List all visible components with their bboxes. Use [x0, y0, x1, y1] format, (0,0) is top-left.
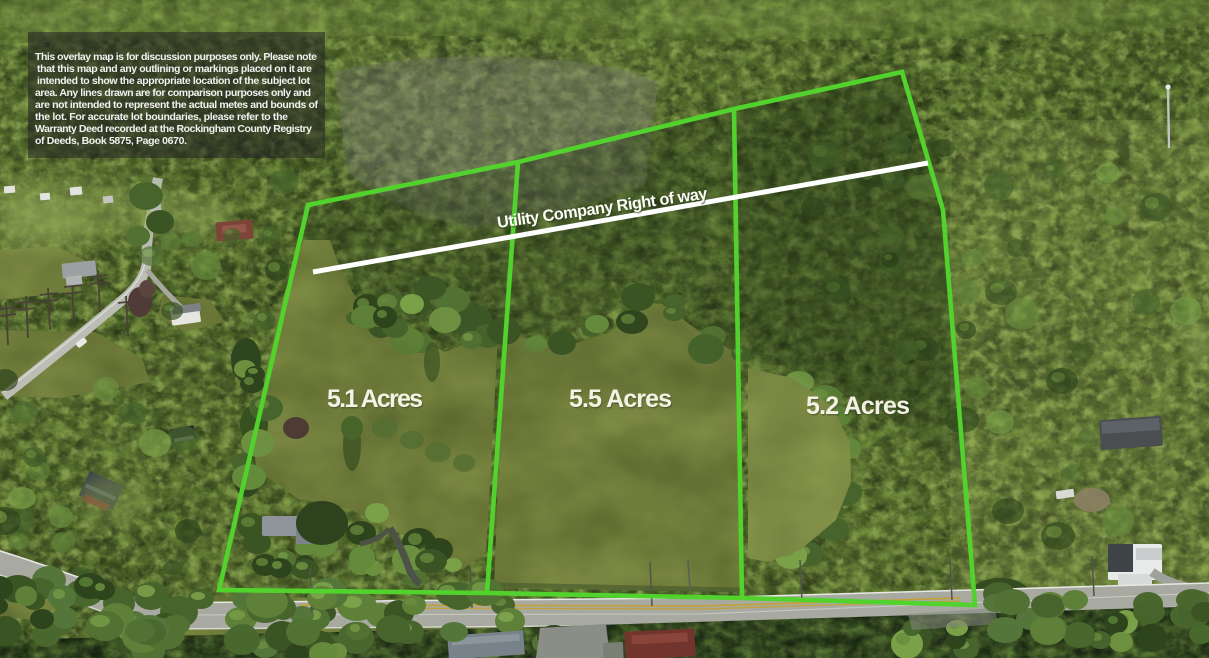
svg-text:intended to show the appropria: intended to show the appropriate locatio… [37, 75, 311, 87]
svg-text:5.5 Acres: 5.5 Acres [569, 385, 672, 413]
svg-text:This overlay map is for discus: This overlay map is for discussion purpo… [35, 51, 317, 63]
svg-text:5.2 Acres: 5.2 Acres [806, 392, 910, 420]
svg-text:5.1 Acres: 5.1 Acres [327, 385, 423, 413]
svg-text:area. Any lines drawn are for: area. Any lines drawn are for comparison… [35, 87, 311, 99]
svg-text:Warranty Deed recorded at the: Warranty Deed recorded at the Rockingham… [35, 123, 312, 135]
svg-text:of Deeds, Book 5875, Page 0670: of Deeds, Book 5875, Page 0670. [35, 135, 187, 147]
svg-text:that this map and any outlinin: that this map and any outlining or marki… [37, 63, 312, 75]
svg-text:are not intended to represent: are not intended to represent the actual… [35, 99, 319, 111]
svg-text:the lot. For accurate lot boun: the lot. For accurate lot boundaries, pl… [35, 111, 288, 123]
